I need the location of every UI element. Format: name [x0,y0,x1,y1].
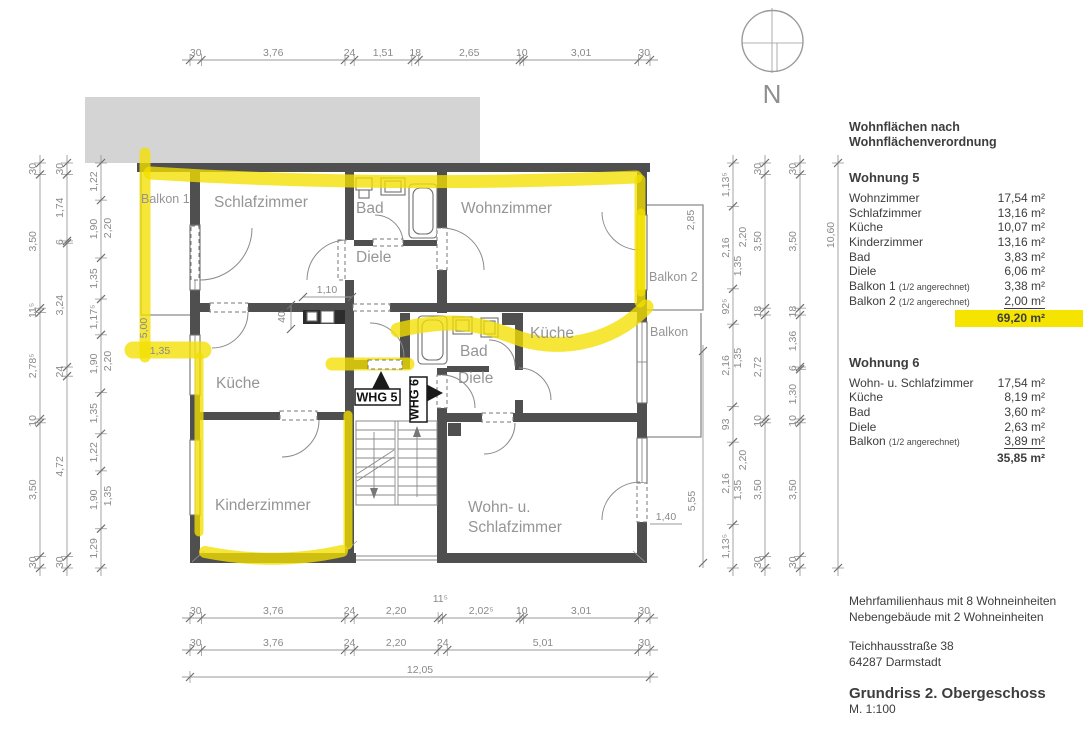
area-row: Kinderzimmer13,16 m² [849,235,1045,250]
row-value: 10,07 m² [998,220,1045,234]
dim-label: 18 [409,47,421,59]
row-label: Wohn- u. Schlafzimmer [849,376,973,390]
dim-label: 1,90 [88,219,100,240]
dim-label: 12,05 [407,664,433,676]
project-line-1: Mehrfamilienhaus mit 8 Wohneinheiten [849,594,1079,610]
area-row: Küche8,19 m² [849,390,1045,405]
room-label-kueche5: Küche [216,375,260,392]
dim-label: 1,90 [88,353,100,374]
row-value: 13,16 m² [998,235,1045,249]
dim-label: 18 [752,306,764,318]
dim-label-secondary: 1,35 [732,480,744,501]
room-label-bad5: Bad [356,200,384,217]
dim-label: 1,90 [88,489,100,510]
row-value: 3,83 m² [1004,250,1045,264]
row-value: 17,54 m² [998,376,1045,390]
wohnung5-total: 69,20 m² [997,311,1045,325]
drawing-title: Grundriss 2. Obergeschoss [849,686,1079,702]
drawing-scale: M. 1:100 [849,702,1079,718]
dim-label: 1,22 [88,442,100,463]
dim-label: 1,35 [88,403,100,424]
dim-label: 30 [190,637,202,649]
dim-label: 1,74 [54,197,66,218]
dim-label-secondary: 1,35 [102,486,114,507]
area-row: Balkon 1(1/2 angerechnet)3,38 m² [849,279,1045,294]
wohnung5-title: Wohnung 5 [849,170,1045,185]
row-value: 3,60 m² [1004,405,1045,419]
room-label-bad6: Bad [460,343,488,360]
row-label: Balkon [849,434,886,448]
row-label: Bad [849,250,870,264]
row-value: 8,19 m² [1004,390,1045,404]
room-label-diele5: Diele [356,249,391,266]
dim-counter-length: 1,10 [317,284,338,296]
dim-label: 1,29 [88,538,100,559]
dim-label: 2,78⁵ [27,353,39,378]
dim-label: 30 [190,605,202,617]
dim-label: 2,20 [386,637,407,649]
dim-label: 3,01 [571,605,592,617]
dim-label: 3,50 [27,479,39,500]
dim-label: 30 [54,556,66,568]
room-label-kueche6: Küche [530,325,574,342]
dim-label: 3,50 [787,479,799,500]
whg5-entry-door-dashed [368,360,402,369]
row-label: Wohnzimmer [849,191,919,205]
row-value: 2,63 m² [1004,420,1045,434]
window-right-lower [637,438,647,483]
room-label-diele6: Diele [458,370,493,387]
dim-label: 30 [190,47,202,59]
dim-balkon-right-height: 5,55 [686,491,698,512]
dim-label: 30 [54,163,66,175]
dim-label: 2,65 [459,47,480,59]
dim-label-secondary: 1,35 [732,348,744,369]
dim-label: 30 [638,637,650,649]
dim-label: 30 [787,163,799,175]
room-label-schlafzimmer: Schlafzimmer [214,194,308,211]
north-label: N [763,79,782,109]
floorplan-sheet: Balkon 1 Schlafzimmer Bad Wohnzimmer Die… [0,0,1083,745]
dim-label: 2,16 [720,237,732,258]
wohnung6-total-row: 35,85 m² [849,451,1045,469]
dim-balkon1-width: 1,35 [150,345,171,357]
dim-balkon2-height: 2,85 [685,210,697,231]
project-line-2: Nebengebäude mit 2 Wohneinheiten [849,610,1079,626]
dim-label: 2,02⁵ [469,605,494,617]
dim-label: 3,50 [787,231,799,252]
area-row: Schlafzimmer13,16 m² [849,206,1045,221]
staircase [356,421,437,505]
whg5-label: WHG 5 [357,391,398,405]
area-row: Küche10,07 m² [849,220,1045,235]
wohnung6-block: Wohnung 6 Wohn- u. Schlafzimmer17,54 m² … [849,355,1045,469]
row-label: Balkon 1 [849,279,896,293]
bathtub-icon [409,184,437,238]
dim-label: 4,72 [54,456,66,477]
dim-label-secondary: 2,20 [737,227,749,248]
dim-balcony-door-width: 1,40 [656,511,677,523]
dim-label: 3,76 [263,605,284,617]
dim-label-secondary: 2,20 [102,218,114,239]
dim-label: 18 [787,306,799,318]
room-label-balkon: Balkon [650,325,688,339]
row-label: Diele [849,264,876,278]
dim-label: 2,20 [386,605,407,617]
dim-balkon1-length: 5,00 [138,318,150,339]
dim-label: 3,76 [263,47,284,59]
row-value: 6,06 m² [1004,264,1045,278]
row-label: Schlafzimmer [849,206,922,220]
dim-label: 3,50 [27,231,39,252]
area-row: Balkon 2(1/2 angerechnet)2,00 m² [849,294,1045,309]
dim-label: 1,13⁵ [720,534,732,559]
dim-label-secondary: 1,35 [732,256,744,277]
row-value: 2,00 m² [1004,294,1045,309]
dim-label: 1,13⁵ [720,172,732,197]
dim-label: 1,22 [88,171,100,192]
dim-label: 30 [752,163,764,175]
kitchen-counter [303,310,345,324]
dim-label: 30 [638,47,650,59]
area-row: Wohn- u. Schlafzimmer17,54 m² [849,376,1045,391]
dim-label: 30 [787,556,799,568]
dim-counter-depth: 40 [276,311,288,323]
area-row: Diele6,06 m² [849,264,1045,279]
dim-label: 6 [54,239,66,245]
north-compass: N [742,8,803,109]
whg6-label: WHG 6 [408,379,422,420]
row-label: Küche [849,220,883,234]
dim-label: 2,72 [752,357,764,378]
wohnung5-rows: Wohnzimmer17,54 m² Schlafzimmer13,16 m² … [849,191,1045,309]
dim-label: 1,35 [88,268,100,289]
area-row: Diele2,63 m² [849,420,1045,435]
dim-label: 30 [27,556,39,568]
row-label: Kinderzimmer [849,235,923,249]
dim-label: 30 [27,163,39,175]
dim-label: 1,30 [787,384,799,405]
dim-label: 3,50 [752,479,764,500]
row-value: 3,89 m² [1004,434,1045,449]
whg5-arrow-icon [372,371,390,389]
dim-label: 30 [752,556,764,568]
dim-label: 3,01 [571,47,592,59]
wohnung6-total: 35,85 m² [997,451,1045,465]
project-info: Mehrfamilienhaus mit 8 Wohneinheiten Neb… [849,594,1079,717]
row-note: (1/2 angerechnet) [899,282,970,292]
row-label: Balkon 2 [849,294,896,308]
dim-label: 30 [638,605,650,617]
room-label-balkon1: Balkon 1 [141,192,190,206]
dim-label: 92⁵ [720,298,732,314]
area-row: Wohnzimmer17,54 m² [849,191,1045,206]
area-row: Bad3,60 m² [849,405,1045,420]
area-table-panel: Wohnflächen nach Wohnflächenverordnung W… [849,120,1045,469]
compass-circle-icon [742,11,803,72]
unit-tag-whg5: WHG 5 [355,371,400,405]
project-city: 64287 Darmstadt [849,655,1079,671]
dim-label-secondary: 2,20 [737,450,749,471]
area-row: Balkon(1/2 angerechnet)3,89 m² [849,434,1045,449]
dim-label: 1,17⁵ [88,305,100,330]
window-stairwell-bottom [356,553,437,563]
dim-label: 2,16 [720,473,732,494]
dim-label: 1,36 [787,331,799,352]
dim-label: 5,01 [533,637,554,649]
dim-label: 3,76 [263,637,284,649]
row-value: 17,54 m² [998,191,1045,205]
project-street: Teichhausstraße 38 [849,639,1079,655]
row-value: 3,38 m² [1004,279,1045,293]
dim-label: 93 [720,418,732,430]
row-value: 13,16 m² [998,206,1045,220]
row-note: (1/2 angerechnet) [899,297,970,307]
dim-label-secondary: 2,20 [102,351,114,372]
dim-label: 6 [787,365,799,371]
row-note: (1/2 angerechnet) [889,437,960,447]
dim-label: 2,16 [720,355,732,376]
panel-heading-2: Wohnflächenverordnung [849,135,1045,150]
room-label-kinderzimmer: Kinderzimmer [215,497,311,514]
area-row: Bad3,83 m² [849,250,1045,265]
row-label: Diele [849,420,876,434]
dim-label: 1,51 [373,47,394,59]
dim-label: 11⁵ [433,593,448,605]
room-label-wohnzimmer: Wohnzimmer [461,200,552,217]
room-label-wohnschlaf-1: Wohn- u. [468,499,531,516]
dim-label: 24 [54,366,66,378]
dim-label: 3,50 [752,231,764,252]
dim-label: 10,60 [825,222,837,248]
wohnung6-title: Wohnung 6 [849,355,1045,370]
wohnung5-total-row: 69,20 m² [849,311,1045,329]
dim-label: 3,24 [54,295,66,316]
row-label: Bad [849,405,870,419]
panel-heading-1: Wohnflächen nach [849,120,1045,135]
room-label-balkon2: Balkon 2 [649,270,698,284]
room-label-wohnschlaf-2: Schlafzimmer [468,519,562,536]
window-right-balkon [637,322,647,403]
row-label: Küche [849,390,883,404]
